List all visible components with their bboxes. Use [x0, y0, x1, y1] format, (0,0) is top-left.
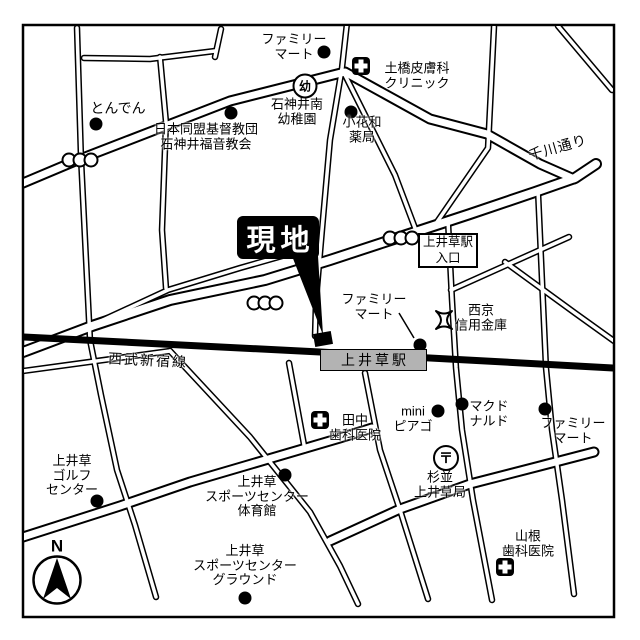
- hospital-cross-icon-yamane: [496, 558, 514, 576]
- label-sports-ground: 上井草 スポーツセンター グラウンド: [193, 544, 297, 588]
- label-kindergarten: 石神井南 幼稚園: [271, 97, 323, 126]
- label-tonden: とんでん: [90, 101, 145, 117]
- map-canvas: ファミリー マート 土橋皮膚科 クリニック とんでん 日本同盟基督教団 石神井福…: [0, 0, 640, 640]
- shinkin-bank-icon: [436, 311, 452, 329]
- traffic-light-icon-center: [248, 297, 283, 310]
- hospital-cross-icon-tanaka: [311, 411, 329, 429]
- traffic-light-icon-entrance: [384, 232, 419, 245]
- poi-dot-tonden: [90, 118, 103, 131]
- label-familymart-north: ファミリー マート: [261, 32, 326, 61]
- kindergarten-badge-icon: 幼: [293, 74, 318, 99]
- hospital-cross-icon-dobashi: [352, 57, 370, 75]
- label-compass-north: N: [51, 536, 63, 555]
- label-church: 日本同盟基督教団 石神井福音教会: [154, 122, 258, 151]
- label-seikyo-shinkin: 西京 信用金庫: [455, 303, 507, 332]
- label-obanawa-pharmacy: 小花和 薬局: [342, 115, 381, 144]
- label-sports-gym: 上井草 スポーツセンター 体育館: [205, 475, 309, 519]
- station-entrance-box: 上井草駅 入口: [418, 233, 478, 268]
- poi-dot-familymart-south: [539, 403, 552, 416]
- label-dobashi-clinic: 土橋皮膚科 クリニック: [384, 61, 449, 90]
- post-office-badge-icon: 〒: [433, 445, 459, 471]
- label-familymart-station: ファミリー マート: [341, 292, 406, 321]
- station-box: 上井草駅: [320, 349, 427, 371]
- poi-dot-church: [225, 107, 238, 120]
- poi-dot-ground: [239, 592, 252, 605]
- label-mcdonalds: マクド ナルド: [469, 399, 508, 428]
- label-tanaka-dental: 田中 歯科医院: [329, 413, 381, 442]
- poi-dot-mcdonalds: [456, 398, 469, 411]
- label-familymart-south: ファミリー マート: [540, 416, 605, 445]
- compass-icon: [34, 557, 81, 604]
- traffic-light-icon-west: [63, 154, 98, 167]
- poi-dot-mini-piago: [432, 405, 445, 418]
- label-kamiigusa-golf: 上井草 ゴルフ センター: [46, 454, 98, 498]
- label-mini-piago: mini ピアゴ: [393, 404, 432, 433]
- site-label-box: 現地: [237, 216, 319, 259]
- label-suginami-post-office: 杉並 上井草局: [414, 470, 466, 499]
- label-yamane-dental: 山根 歯科医院: [502, 529, 554, 558]
